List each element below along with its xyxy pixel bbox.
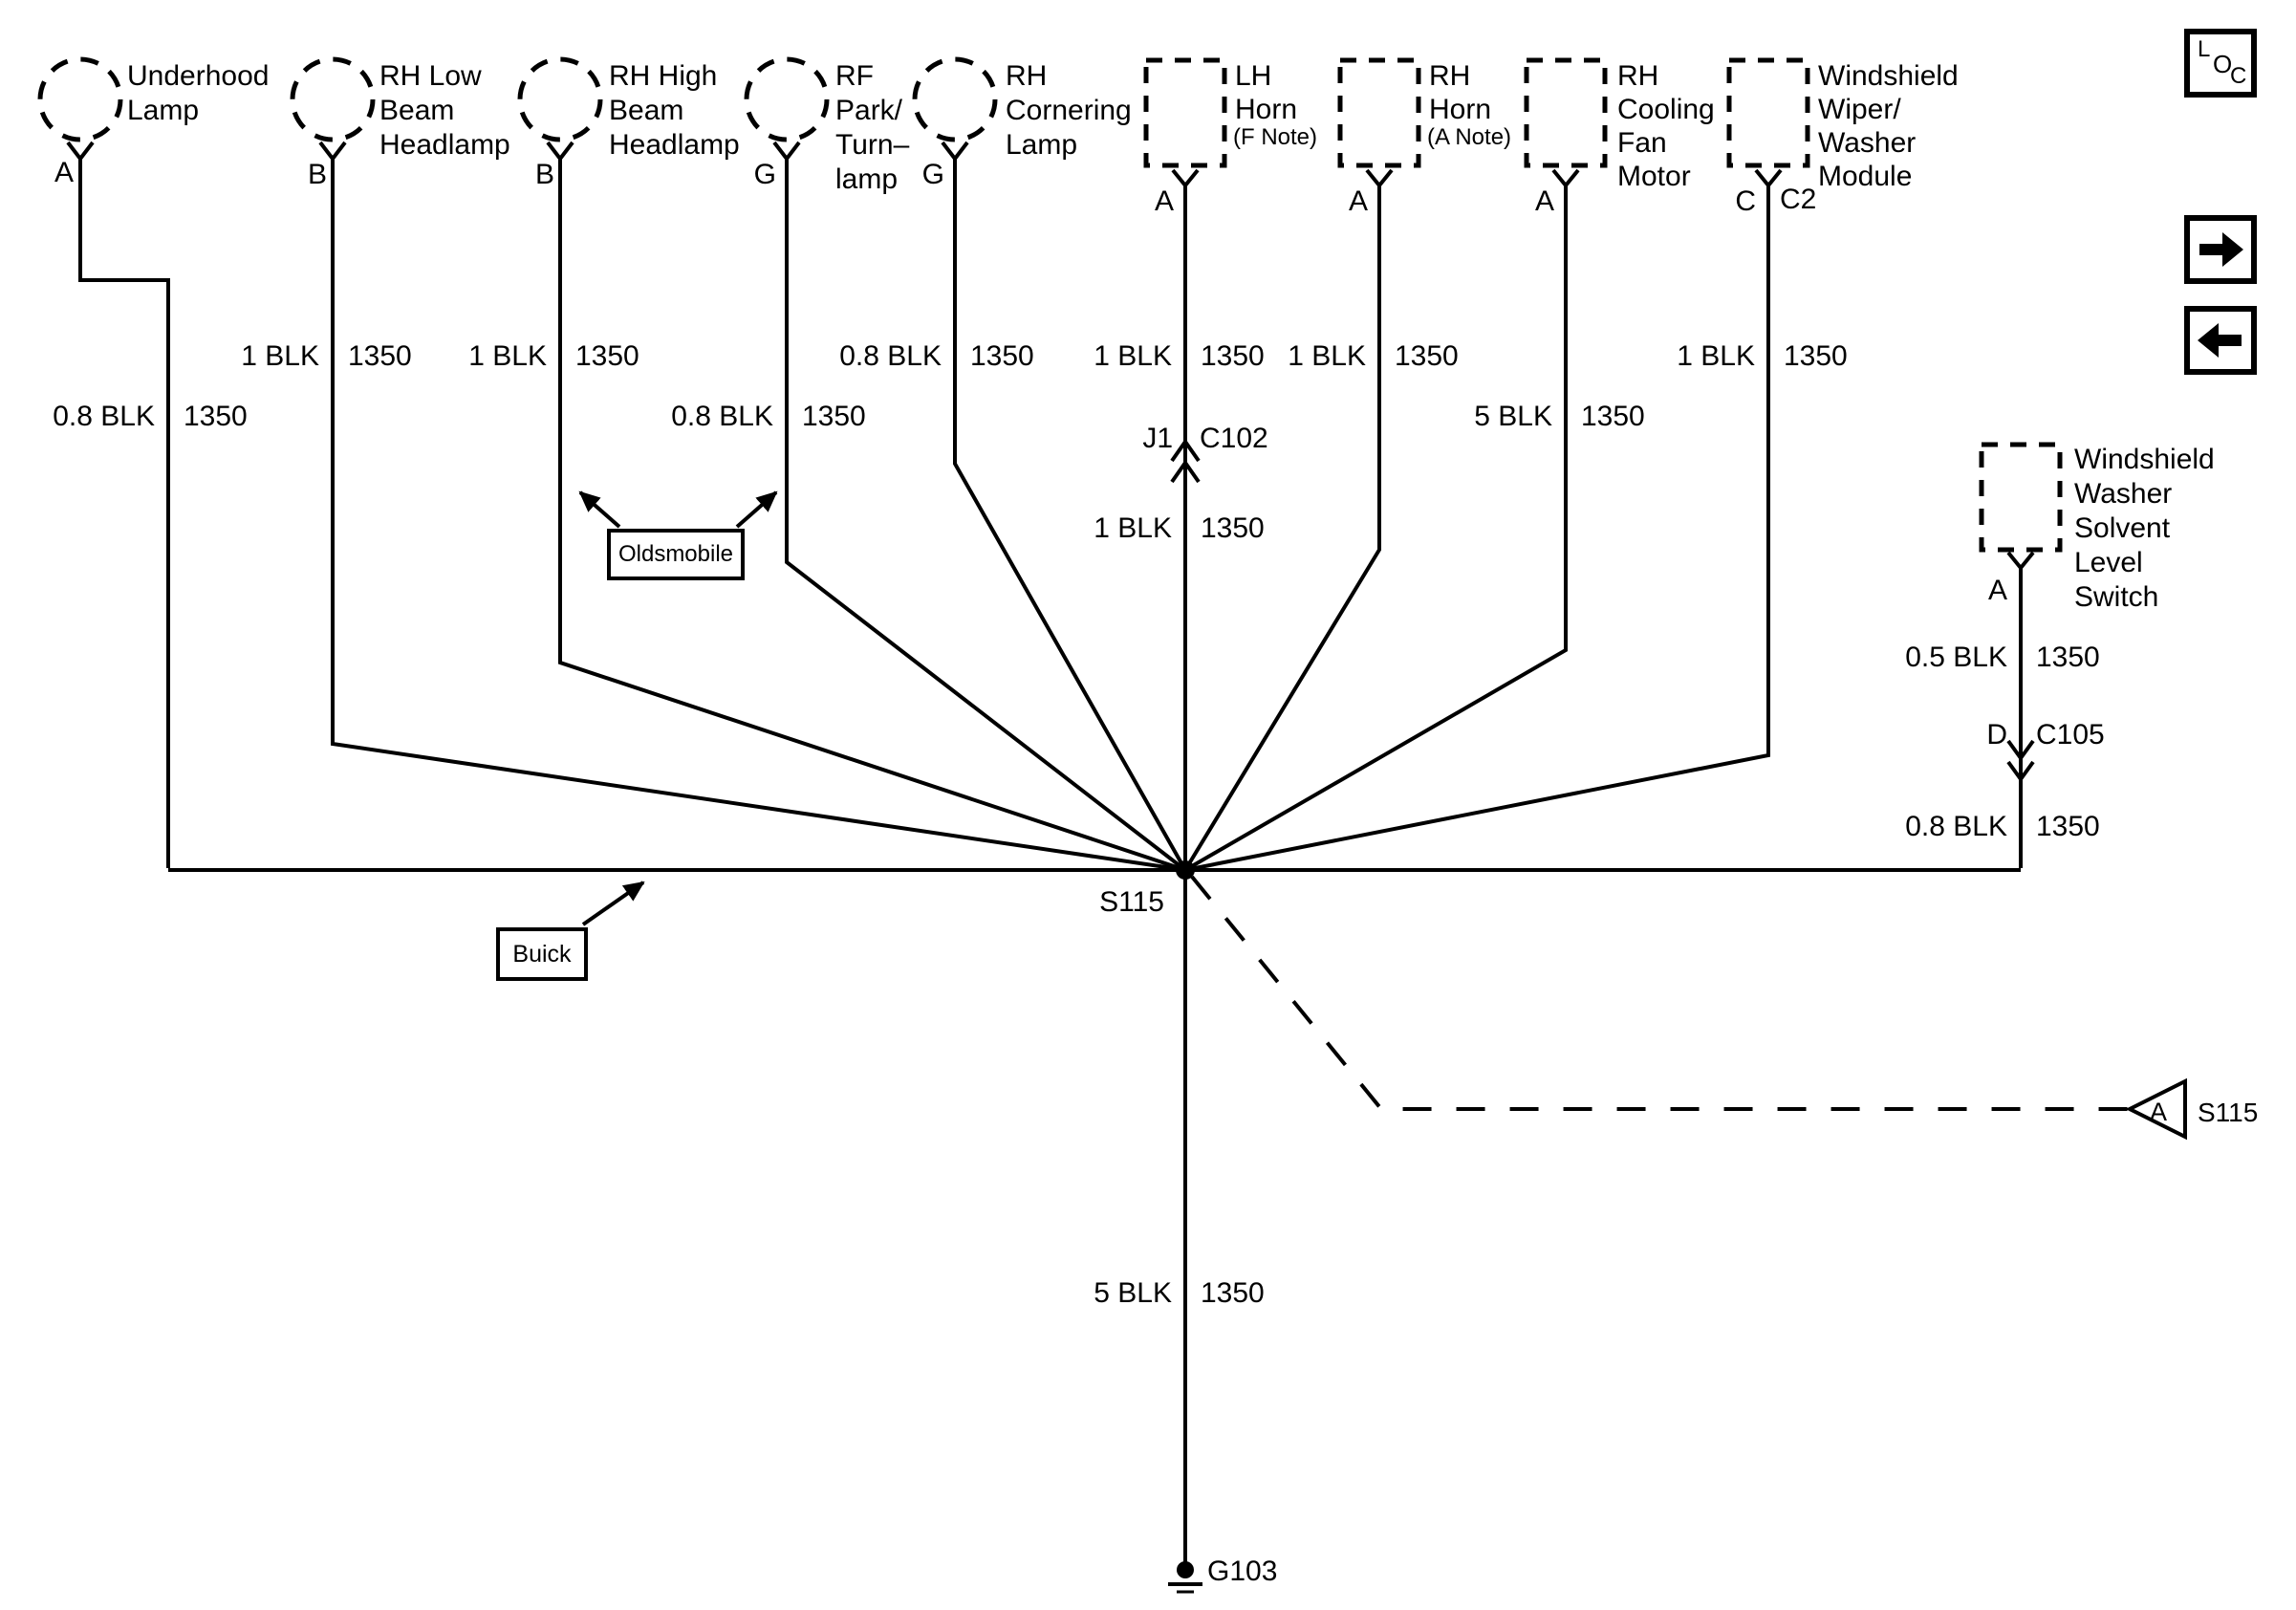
wire-gauge-label: 0.8 BLK [671, 400, 773, 434]
rh-low-beam-headlamp-symbol [292, 59, 373, 140]
component-label: Wiper/ [1818, 93, 1901, 127]
component-label: Underhood [127, 59, 269, 94]
buick-callout-label: Buick [512, 941, 571, 968]
connector-pin-label: J1 [1142, 422, 1173, 456]
wire-gauge-label: 0.8 BLK [839, 339, 942, 374]
wire-gauge-label: 1 BLK [1677, 339, 1755, 374]
wire-gauge-label: 0.5 BLK [1905, 641, 2007, 675]
pin-label: B [308, 158, 327, 192]
washer-solvent-level-switch-box [1982, 445, 2060, 550]
component-label: RH Low [379, 59, 482, 94]
wire-gauge-label: 5 BLK [1094, 1276, 1172, 1311]
wire-circuit-label: 1350 [970, 339, 1034, 374]
component-label: Washer [1818, 126, 1916, 161]
pin-label: C [1735, 185, 1756, 219]
pin-label: B [535, 158, 554, 192]
oldsmobile-arrow-right-icon [737, 492, 776, 527]
component-label: Windshield [1818, 59, 1959, 94]
wire-gauge-label: 5 BLK [1474, 400, 1552, 434]
pin-label: G [922, 158, 944, 192]
component-label: LH [1235, 59, 1271, 94]
component-note: (A Note) [1427, 123, 1511, 152]
oldsmobile-callout-box: Oldsmobile [607, 529, 745, 580]
ground-label: G103 [1207, 1555, 1277, 1589]
component-label: Headlamp [609, 128, 740, 163]
pin-label: A [1349, 185, 1368, 219]
ground-symbol-icon [1168, 1561, 1202, 1592]
loc-button[interactable]: L O C [2184, 29, 2257, 98]
next-page-button[interactable] [2184, 215, 2257, 284]
component-label: Beam [609, 94, 683, 128]
wire-gauge-label: 1 BLK [1094, 511, 1172, 546]
pin-label: G [754, 158, 776, 192]
wiper-washer-module-box [1729, 60, 1808, 165]
offpage-dashed-wire [1192, 877, 2128, 1109]
component-label: Fan [1617, 126, 1667, 161]
wire-wiper-module [1185, 185, 1768, 870]
wire-gauge-label: 0.8 BLK [1905, 810, 2007, 844]
component-label: Level [2074, 546, 2143, 580]
component-label: Windshield [2074, 443, 2215, 477]
wire-underhood [80, 158, 168, 868]
wire-circuit-label: 1350 [1395, 339, 1459, 374]
left-arrow-icon [2190, 312, 2251, 369]
pin-label: A [1988, 574, 2007, 608]
component-note: (F Note) [1233, 123, 1317, 152]
buick-arrow-icon [583, 882, 643, 925]
component-label: Washer [2074, 477, 2172, 511]
component-label: Turn– [835, 128, 909, 163]
wire-gauge-label: 0.8 BLK [53, 400, 155, 434]
wire-circuit-label: 1350 [1784, 339, 1848, 374]
wire-gauge-label: 1 BLK [241, 339, 319, 374]
rh-high-beam-headlamp-symbol [520, 59, 600, 140]
oldsmobile-callout-label: Oldsmobile [618, 541, 733, 568]
wire-circuit-label: 1350 [2036, 810, 2100, 844]
pin-label: A [1155, 185, 1174, 219]
component-label: Headlamp [379, 128, 510, 163]
component-label: Cornering [1006, 94, 1132, 128]
inline-connectors [1172, 442, 2033, 779]
component-label: Solvent [2074, 511, 2170, 546]
wire-circuit-label: 1350 [1581, 400, 1645, 434]
right-arrow-icon [2190, 221, 2251, 278]
component-label: Cooling [1617, 93, 1715, 127]
wire-circuit-label: 1350 [184, 400, 248, 434]
component-label: Module [1818, 160, 1912, 194]
pin-label: A [54, 156, 74, 190]
wire-circuit-label: 1350 [1201, 511, 1265, 546]
pin-label: A [1535, 185, 1554, 219]
wire-circuit-label: 1350 [1201, 339, 1265, 374]
lh-horn-box [1146, 60, 1224, 165]
component-label: lamp [835, 163, 898, 197]
diagram-linework [0, 0, 2296, 1610]
offpage-name-label: S115 [2198, 1096, 2258, 1130]
oldsmobile-arrow-left-icon [580, 492, 619, 527]
underhood-lamp-symbol [40, 59, 120, 140]
rh-cooling-fan-motor-box [1527, 60, 1605, 165]
wire-gauge-label: 1 BLK [1094, 339, 1172, 374]
component-label: RH High [609, 59, 717, 94]
pin-label: C2 [1780, 183, 1816, 217]
offpage-pin-label: A [2150, 1095, 2167, 1129]
component-label: Lamp [127, 94, 199, 128]
component-label: Beam [379, 94, 454, 128]
wire-circuit-label: 1350 [348, 339, 412, 374]
wire-rh-high-beam [560, 158, 1185, 870]
wire-circuit-label: 1350 [575, 339, 639, 374]
rh-horn-box [1340, 60, 1419, 165]
connector-name-label: C102 [1200, 422, 1268, 456]
component-label: RF [835, 59, 874, 94]
splice-label: S115 [1099, 885, 1164, 920]
component-label: Lamp [1006, 128, 1077, 163]
buick-callout-box: Buick [496, 927, 588, 981]
component-label: Park/ [835, 94, 902, 128]
connector-pin-label: D [1986, 718, 2007, 752]
component-label: Horn [1235, 93, 1297, 127]
connector-name-label: C105 [2036, 718, 2105, 752]
wire-circuit-label: 1350 [1201, 1276, 1265, 1311]
wire-circuit-label: 1350 [2036, 641, 2100, 675]
wiring-diagram-page: Underhood Lamp RH Low Beam Headlamp RH H… [0, 0, 2296, 1610]
component-label: Switch [2074, 580, 2158, 615]
rf-park-turn-lamp-symbol [747, 59, 827, 140]
loc-letter-l: L [2198, 36, 2210, 63]
component-label: Motor [1617, 160, 1691, 194]
wire-rh-low-beam [333, 158, 1185, 870]
loc-letter-c: C [2230, 63, 2246, 90]
component-label: RH [1617, 59, 1658, 94]
wire-circuit-label: 1350 [802, 400, 866, 434]
wire-gauge-label: 1 BLK [1288, 339, 1366, 374]
previous-page-button[interactable] [2184, 306, 2257, 375]
component-label: RH [1006, 59, 1047, 94]
wire-gauge-label: 1 BLK [468, 339, 547, 374]
component-label: RH [1429, 59, 1470, 94]
rh-cornering-lamp-symbol [915, 59, 995, 140]
component-label: Horn [1429, 93, 1491, 127]
